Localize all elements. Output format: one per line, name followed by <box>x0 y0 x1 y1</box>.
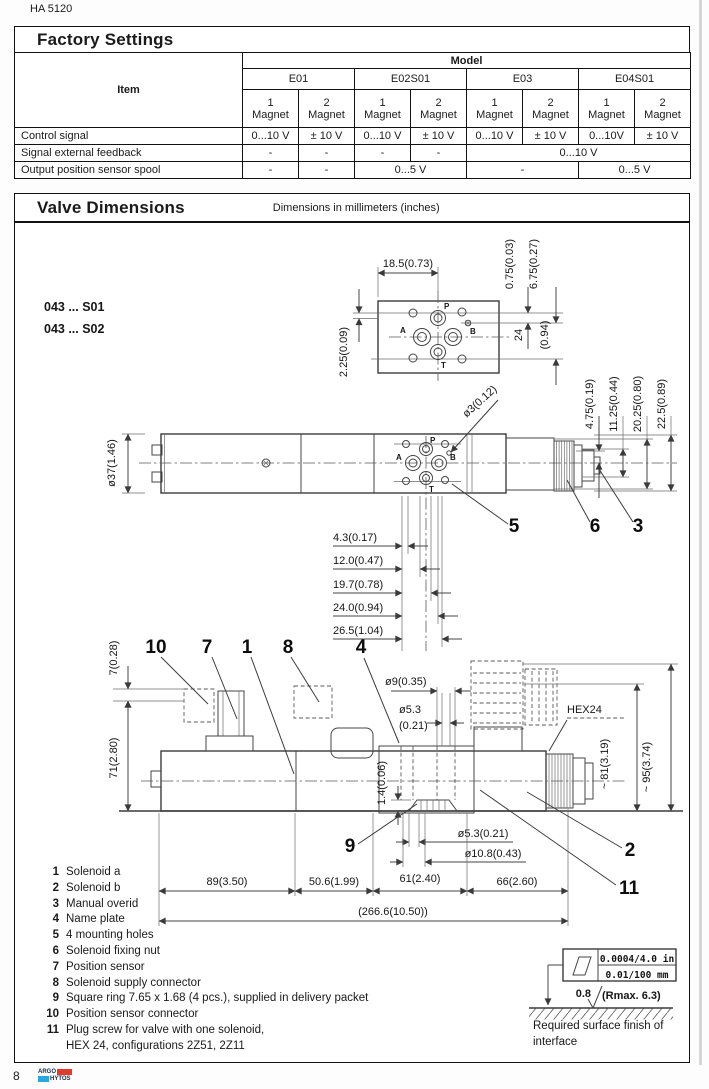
table-cell: 0...10 V <box>467 145 691 162</box>
port-label-p-side: P <box>430 436 436 445</box>
dim-1125: 11.25(0.44) <box>608 376 620 431</box>
legend-item: HEX 24, configurations 2Z51, 2Z11 <box>33 1039 433 1055</box>
table-cell: - <box>355 145 411 162</box>
legend-text: Solenoid fixing nut <box>66 944 160 960</box>
dim-14: 1.4(0.06) <box>376 761 388 805</box>
roughness-symbol-icon <box>588 999 593 1008</box>
magnet-header-cell: 2Magnet <box>299 90 355 128</box>
magnet-count: 2 <box>547 97 553 109</box>
magnet-word: Magnet <box>476 109 513 121</box>
position-sensor-connector <box>184 689 214 722</box>
legend-num: 11 <box>33 1023 66 1039</box>
hatching <box>529 1009 673 1020</box>
magnet-word: Magnet <box>364 109 401 121</box>
dim-2025: 20.25(0.80) <box>632 376 644 432</box>
legend-text: HEX 24, configurations 2Z51, 2Z11 <box>66 1039 245 1055</box>
magnet-word: Magnet <box>308 109 345 121</box>
callout-1: 1 <box>242 637 253 658</box>
right-side-dims: 4.75(0.19) 11.25(0.44) 20.25(0.80) 22.5(… <box>554 376 677 498</box>
legend-list: 1Solenoid a 2Solenoid b 3Manual overid 4… <box>33 865 433 1055</box>
dim-24: 24 <box>513 329 525 341</box>
legend-num: 7 <box>33 960 66 976</box>
variant-label-s02: 043 ... S02 <box>44 322 105 336</box>
legend-item: 54 mounting holes <box>33 928 433 944</box>
table-cell: - <box>467 162 579 179</box>
legend-text: Plug screw for valve with one solenoid, <box>66 1023 264 1039</box>
legend-num: 1 <box>33 865 66 881</box>
legend-num: 9 <box>33 991 66 1007</box>
surface-ra-value: 0.8 <box>576 988 591 1000</box>
table-cell: 0...5 V <box>355 162 467 179</box>
logo-text-hytos: HYTOS <box>50 1076 71 1082</box>
table-cell: 0...10 V <box>355 128 411 145</box>
surface-spec-mm: 0.01/100 mm <box>606 970 669 981</box>
row-label-signal-feedback: Signal external feedback <box>15 145 243 162</box>
table-cell: 0...10 V <box>467 128 523 145</box>
table-cell: - <box>411 145 467 162</box>
dim-95: ~ 95(3.74) <box>641 742 653 792</box>
magnet-count: 2 <box>659 97 665 109</box>
middle-view-drawing: P A B T ø37(1.46) ø3(0.12) <box>106 376 677 651</box>
dim-475: 4.75(0.19) <box>584 379 596 429</box>
col-header-model: Model <box>243 53 691 69</box>
magnet-word: Magnet <box>588 109 625 121</box>
logo-blue-block-icon <box>38 1076 49 1082</box>
table-cell: 0...10 V <box>243 128 299 145</box>
solenoid-supply-connector-b <box>471 661 557 751</box>
surface-caption-line1: Required surface finish of <box>533 1020 664 1032</box>
magnet-count: 2 <box>435 97 441 109</box>
square-ring <box>409 800 457 811</box>
callout-9: 9 <box>345 836 356 857</box>
legend-text: Position sensor <box>66 960 145 976</box>
variant-label-s01: 043 ... S01 <box>44 300 105 314</box>
factory-settings-header: Factory Settings <box>14 26 690 53</box>
dim-d37: ø37(1.46) <box>106 439 118 487</box>
datasheet-page: HA 5120 Factory Settings Item Model E01 … <box>0 0 709 1089</box>
top-view-drawing: P A B T 18.5(0.73) 2.25(0.09) 0.75(0.03) <box>338 239 563 385</box>
legend-num: 3 <box>33 897 66 913</box>
legend-item: 3Manual overid <box>33 897 433 913</box>
dim-24-inch: (0.94) <box>539 321 551 350</box>
legend-num <box>33 1039 66 1055</box>
callout-4: 4 <box>356 637 367 658</box>
dim-d3: ø3(0.12) <box>461 383 500 420</box>
flatness-symbol-icon <box>573 957 591 975</box>
port-label-a: A <box>400 326 406 335</box>
magnet-count: 1 <box>267 97 273 109</box>
fixing-nut-and-override-side <box>506 438 600 491</box>
magnet-word: Magnet <box>252 109 289 121</box>
valve-dimensions-title: Valve Dimensions <box>15 198 185 218</box>
argo-hytos-logo: ARGO HYTOS <box>38 1069 72 1083</box>
port-holes-side-view <box>394 436 461 651</box>
legend-text: Name plate <box>66 912 125 928</box>
factory-settings-title: Factory Settings <box>15 30 173 50</box>
dim-71: 71(2.80) <box>108 738 120 779</box>
model-e02s01: E02S01 <box>355 69 467 90</box>
legend-text: Solenoid supply connector <box>66 976 201 992</box>
legend-text: Position sensor connector <box>66 1007 198 1023</box>
variant-labels: 043 ... S01 043 ... S02 <box>44 300 105 336</box>
dim-675: 6.75(0.27) <box>528 239 540 289</box>
magnet-count: 1 <box>379 97 385 109</box>
surface-rmax-value: (Rmax. 6.3) <box>602 990 661 1002</box>
port-position-dims: 4.3(0.17) 12.0(0.47) 19.7(0.78) 24.0(0.9… <box>333 532 462 639</box>
model-e03: E03 <box>467 69 579 90</box>
dim-7: 7(0.28) <box>108 641 120 676</box>
legend-text: Solenoid a <box>66 865 120 881</box>
port-label-p: P <box>444 302 450 311</box>
document-code: HA 5120 <box>30 3 72 15</box>
port-label-b: B <box>470 327 476 336</box>
magnet-count: 1 <box>603 97 609 109</box>
logo-red-block-icon <box>57 1069 72 1075</box>
dimensions-unit-note: Dimensions in millimeters (inches) <box>273 202 440 214</box>
legend-item: 7Position sensor <box>33 960 433 976</box>
valve-dimensions-header: Valve Dimensions Dimensions in millimete… <box>14 193 690 222</box>
dim-d108: ø10.8(0.43) <box>465 848 522 860</box>
legend-text: 4 mounting holes <box>66 928 154 944</box>
dim-43: 4.3(0.17) <box>333 532 377 544</box>
legend-num: 4 <box>33 912 66 928</box>
dim-225: 2.25(0.09) <box>338 327 350 377</box>
table-cell: - <box>243 162 299 179</box>
row-label-output-sensor: Output position sensor spool <box>15 162 243 179</box>
callout-2: 2 <box>625 840 636 861</box>
page-edge-shadow <box>699 0 702 1065</box>
logo-text-argo: ARGO <box>38 1069 56 1075</box>
model-e01: E01 <box>243 69 355 90</box>
dim-225b: 22.5(0.89) <box>656 379 668 429</box>
dim-66: 66(2.60) <box>497 876 538 888</box>
legend-item: 11Plug screw for valve with one solenoid… <box>33 1023 433 1039</box>
table-cell: 0...5 V <box>579 162 691 179</box>
surface-finish-detail: 0.0004/4.0 in 0.01/100 mm 0.8 (Rmax. 6.3… <box>529 949 676 1048</box>
port-label-a-side: A <box>396 453 402 462</box>
dim-d53-upper: ø5.3 <box>399 704 421 716</box>
dim-d9: ø9(0.35) <box>385 676 427 688</box>
valve-drawing-area: 043 ... S01 043 ... S02 <box>14 222 690 1063</box>
magnet-header-cell: 2Magnet <box>411 90 467 128</box>
name-plate <box>331 728 373 758</box>
callout-3: 3 <box>633 516 644 537</box>
dim-top-width: 18.5(0.73) <box>383 258 433 270</box>
callout-7: 7 <box>202 637 213 658</box>
magnet-word: Magnet <box>532 109 569 121</box>
magnet-word: Magnet <box>644 109 681 121</box>
model-e04s01: E04S01 <box>579 69 691 90</box>
surface-spec-in: 0.0004/4.0 in <box>600 954 674 965</box>
callout-10: 10 <box>145 637 166 658</box>
dim-240: 24.0(0.94) <box>333 602 383 614</box>
surface-caption-line2: interface <box>533 1036 577 1048</box>
legend-num: 10 <box>33 1007 66 1023</box>
magnet-header-cell: 2Magnet <box>523 90 579 128</box>
dim-197: 19.7(0.78) <box>333 579 383 591</box>
callout-11: 11 <box>619 878 640 899</box>
table-cell: ± 10 V <box>523 128 579 145</box>
table-cell: - <box>243 145 299 162</box>
table-cell: ± 10 V <box>299 128 355 145</box>
magnet-count: 1 <box>491 97 497 109</box>
legend-item: 10Position sensor connector <box>33 1007 433 1023</box>
magnet-header-cell: 2Magnet <box>635 90 691 128</box>
callout-5: 5 <box>509 516 520 537</box>
factory-settings-table: Item Model E01 E02S01 E03 E04S01 1Magnet… <box>14 52 691 179</box>
port-holes-top-view <box>409 308 471 363</box>
legend-item: 2Solenoid b <box>33 881 433 897</box>
legend-item: 6Solenoid fixing nut <box>33 944 433 960</box>
legend-item: 9Square ring 7.65 x 1.68 (4 pcs.), suppl… <box>33 991 433 1007</box>
dim-075: 0.75(0.03) <box>504 239 516 289</box>
legend-num: 6 <box>33 944 66 960</box>
magnet-header-cell: 1Magnet <box>355 90 411 128</box>
dim-81: ~ 81(3.19) <box>599 739 611 789</box>
port-label-b-side: B <box>450 453 456 462</box>
dim-265: 26.5(1.04) <box>333 625 383 637</box>
page-number: 8 <box>13 1069 20 1083</box>
legend-text: Manual overid <box>66 897 138 913</box>
table-cell: - <box>299 162 355 179</box>
legend-text: Solenoid b <box>66 881 120 897</box>
magnet-header-cell: 1Magnet <box>243 90 299 128</box>
table-cell: 0...10V <box>579 128 635 145</box>
magnet-header-cell: 1Magnet <box>467 90 523 128</box>
col-header-item: Item <box>15 53 243 128</box>
legend-num: 5 <box>33 928 66 944</box>
magnet-count: 2 <box>323 97 329 109</box>
legend-text: Square ring 7.65 x 1.68 (4 pcs.), suppli… <box>66 991 368 1007</box>
legend-num: 2 <box>33 881 66 897</box>
callout-8: 8 <box>283 637 294 658</box>
magnet-header-cell: 1Magnet <box>579 90 635 128</box>
magnet-word: Magnet <box>420 109 457 121</box>
table-cell: - <box>299 145 355 162</box>
solenoid-supply-connector-a <box>294 686 332 718</box>
legend-item: 4Name plate <box>33 912 433 928</box>
legend-item: 1Solenoid a <box>33 865 433 881</box>
port-label-t-side: T <box>429 485 434 494</box>
legend-num: 8 <box>33 976 66 992</box>
table-cell: ± 10 V <box>635 128 691 145</box>
table-cell: ± 10 V <box>411 128 467 145</box>
dim-120: 12.0(0.47) <box>333 555 383 567</box>
dim-d53-upper-inch: (0.21) <box>399 720 428 732</box>
dim-hex24: HEX24 <box>567 704 602 716</box>
callout-6: 6 <box>590 516 601 537</box>
legend-item: 8Solenoid supply connector <box>33 976 433 992</box>
port-label-t: T <box>441 361 446 370</box>
dim-d53-lower: ø5.3(0.21) <box>458 828 509 840</box>
row-label-control-signal: Control signal <box>15 128 243 145</box>
